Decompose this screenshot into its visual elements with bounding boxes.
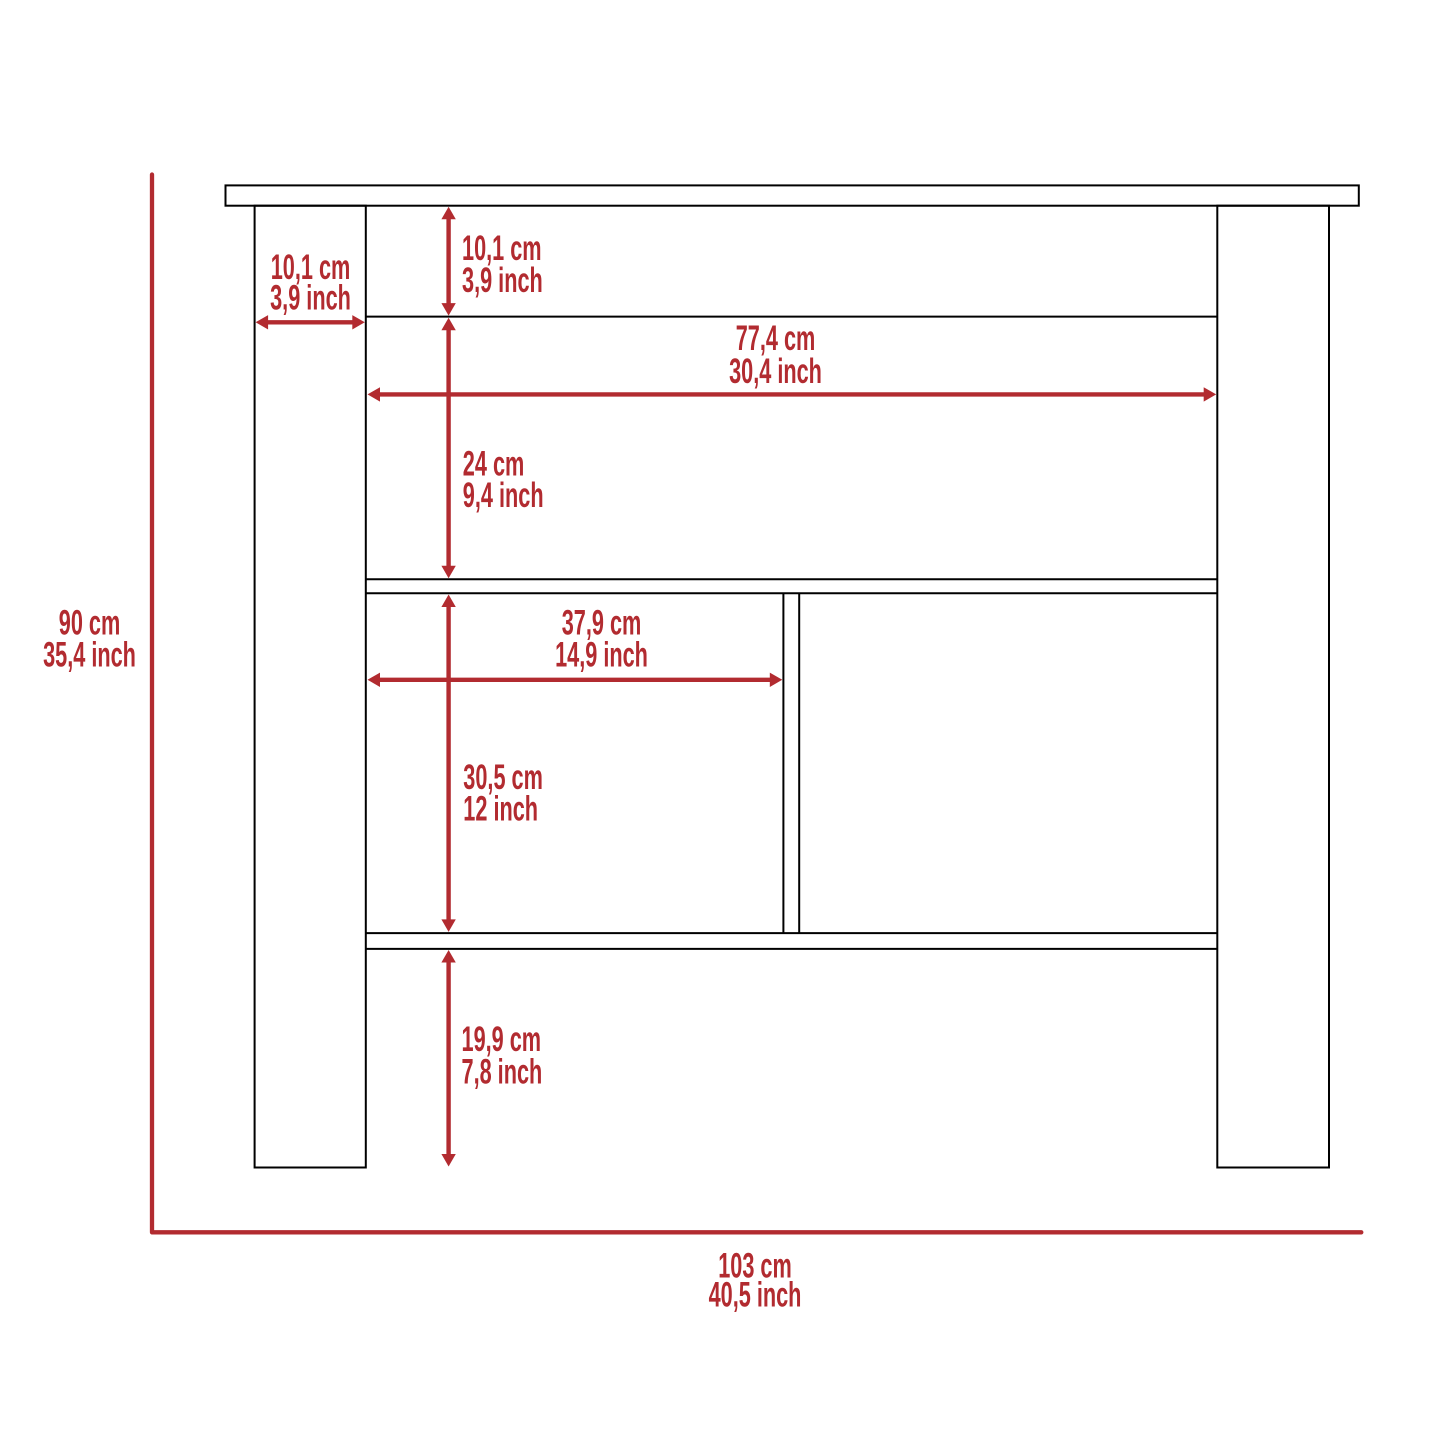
svg-text:35,4 inch: 35,4 inch (43, 636, 136, 674)
svg-text:9,4 inch: 9,4 inch (463, 477, 544, 515)
svg-text:12 inch: 12 inch (463, 791, 538, 829)
svg-text:30,4 inch: 30,4 inch (729, 353, 822, 391)
svg-text:14,9 inch: 14,9 inch (555, 636, 648, 674)
svg-text:3,9 inch: 3,9 inch (462, 262, 543, 300)
svg-text:7,8 inch: 7,8 inch (462, 1053, 543, 1091)
svg-text:40,5 inch: 40,5 inch (709, 1276, 802, 1314)
svg-text:3,9 inch: 3,9 inch (270, 279, 351, 317)
